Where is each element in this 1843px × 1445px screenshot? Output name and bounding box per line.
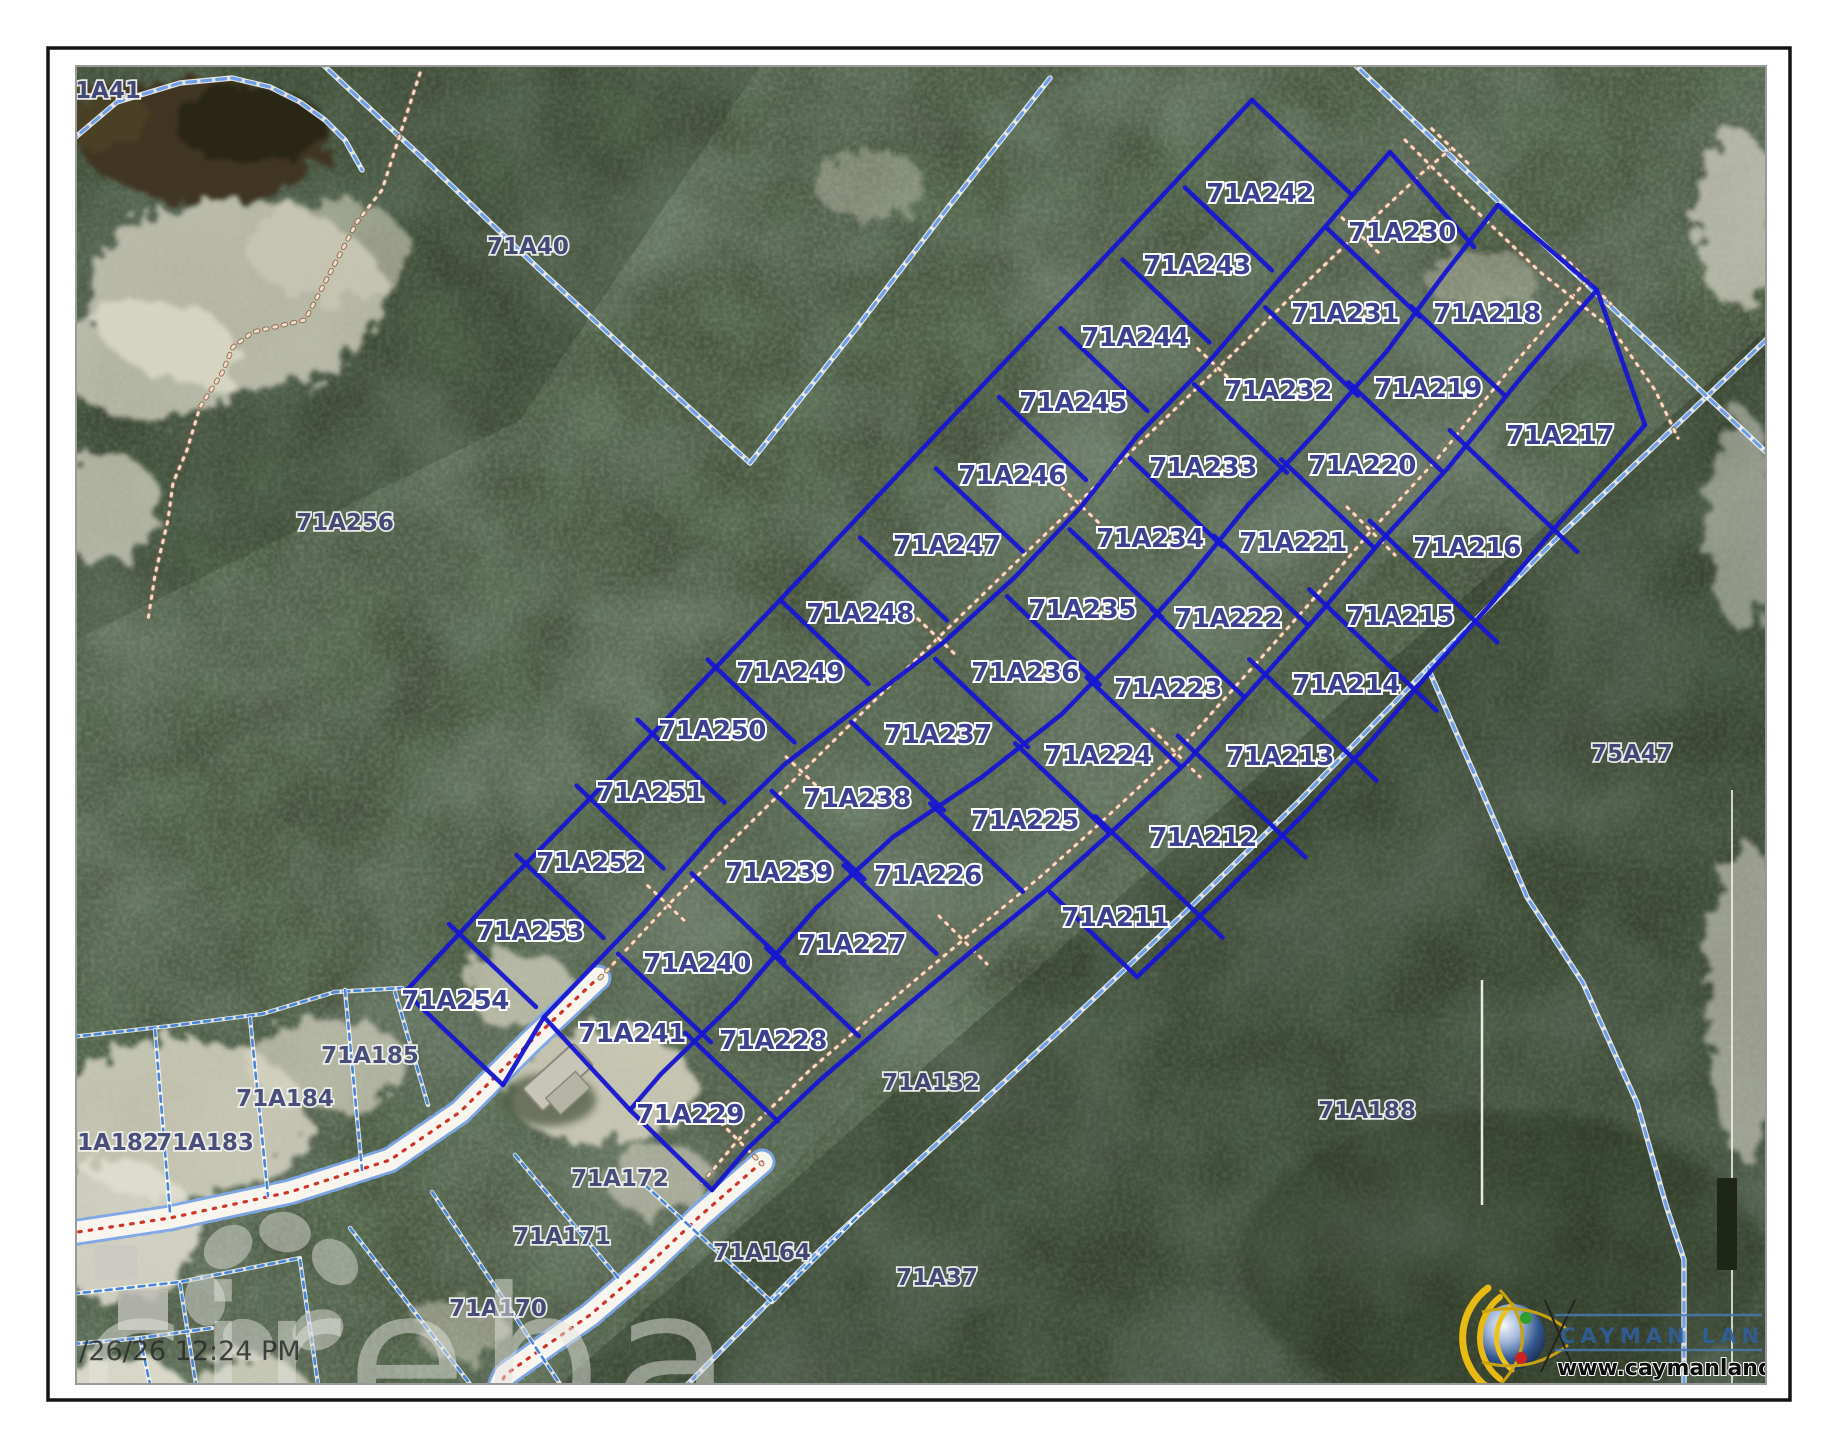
- parcel-label-71A220: 71A220: [1308, 451, 1416, 481]
- parcel-label-71A236: 71A236: [971, 658, 1079, 688]
- parcel-label-71A254: 71A254: [401, 986, 509, 1016]
- parcel-label-71A212: 71A212: [1149, 823, 1257, 853]
- parcel-label-71A238: 71A238: [803, 784, 911, 814]
- parcel-label-71A237: 71A237: [884, 720, 992, 750]
- parcel-label-71A242: 71A242: [1206, 179, 1314, 209]
- parcel-label-71A247: 71A247: [893, 531, 1001, 561]
- parcel-label-71A253: 71A253: [476, 917, 584, 947]
- dark-structure: [1717, 1178, 1737, 1270]
- parcel-label-71A232: 71A232: [1224, 376, 1332, 406]
- parcel-label-71A246: 71A246: [958, 461, 1066, 491]
- parcel-label-71A213: 71A213: [1226, 742, 1334, 772]
- parcel-label-71A40: 71A40: [487, 234, 569, 260]
- parcel-label-71A226: 71A226: [874, 861, 982, 891]
- parcel-label-71A37: 71A37: [896, 1265, 978, 1291]
- parcel-label-71A250: 71A250: [658, 716, 766, 746]
- parcel-label-71A235: 71A235: [1028, 595, 1136, 625]
- parcel-label-71A222: 71A222: [1174, 604, 1282, 634]
- parcel-label-71A214: 71A214: [1292, 670, 1400, 700]
- parcel-label-71A215: 71A215: [1346, 602, 1454, 632]
- parcel-label-71A219: 71A219: [1374, 374, 1482, 404]
- parcel-label-71A224: 71A224: [1044, 741, 1152, 771]
- parcel-label-71A227: 71A227: [798, 930, 906, 960]
- parcel-label-71A231: 71A231: [1291, 299, 1399, 329]
- parcel-label-71A184: 71A184: [236, 1086, 334, 1112]
- parcel-label-71A225: 71A225: [971, 806, 1079, 836]
- parcel-label-71A240: 71A240: [643, 949, 751, 979]
- parcel-label-71A234: 71A234: [1096, 524, 1204, 554]
- parcel-label-71A233: 71A233: [1149, 453, 1257, 483]
- parcel-label-71A221: 71A221: [1239, 528, 1347, 558]
- parcel-label-71A249: 71A249: [736, 658, 844, 688]
- parcel-label-75A47: 75A47: [1591, 741, 1673, 767]
- parcel-label-71A41: 71A41: [59, 78, 141, 104]
- parcel-label-71A256: 71A256: [296, 510, 394, 536]
- logo-title: CAYMAN LAND INFO: [1560, 1324, 1843, 1348]
- parcel-label-71A229: 71A229: [636, 1100, 744, 1130]
- parcel-label-71A185: 71A185: [321, 1043, 419, 1069]
- parcel-label-71A223: 71A223: [1114, 674, 1222, 704]
- map-content[interactable]: 71A24271A24371A24471A24571A24671A24771A2…: [20, 60, 1843, 1445]
- parcel-label-71A132: 71A132: [882, 1070, 980, 1096]
- parcel-label-71A183: 71A183: [156, 1130, 254, 1156]
- parcel-label-71A228: 71A228: [719, 1026, 827, 1056]
- parcel-label-71A241: 71A241: [578, 1019, 686, 1049]
- parcel-label-71A172: 71A172: [571, 1166, 669, 1192]
- parcel-label-71A211: 71A211: [1061, 903, 1169, 933]
- parcel-label-71A251: 71A251: [596, 778, 704, 808]
- parcel-label-71A239: 71A239: [725, 858, 833, 888]
- parcel-label-71A243: 71A243: [1143, 251, 1251, 281]
- logo-url: www.caymanlandinfo.ky: [1557, 1356, 1843, 1381]
- parcel-label-71A188: 71A188: [1318, 1098, 1416, 1124]
- aerial-parcel-map[interactable]: 71A24271A24371A24471A24571A24671A24771A2…: [0, 0, 1843, 1445]
- parcel-label-71A217: 71A217: [1506, 421, 1614, 451]
- parcel-label-71A216: 71A216: [1413, 533, 1521, 563]
- parcel-label-71A252: 71A252: [536, 848, 644, 878]
- parcel-label-71A245: 71A245: [1019, 388, 1127, 418]
- map-viewport[interactable]: 71A24271A24371A24471A24571A24671A24771A2…: [0, 0, 1843, 1445]
- parcel-label-71A248: 71A248: [806, 599, 914, 629]
- parcel-label-71A244: 71A244: [1081, 323, 1189, 353]
- parcel-label-71A218: 71A218: [1433, 299, 1541, 329]
- timestamp: 3/26/26 12:24 PM: [62, 1336, 301, 1367]
- parcel-label-71A230: 71A230: [1348, 218, 1456, 248]
